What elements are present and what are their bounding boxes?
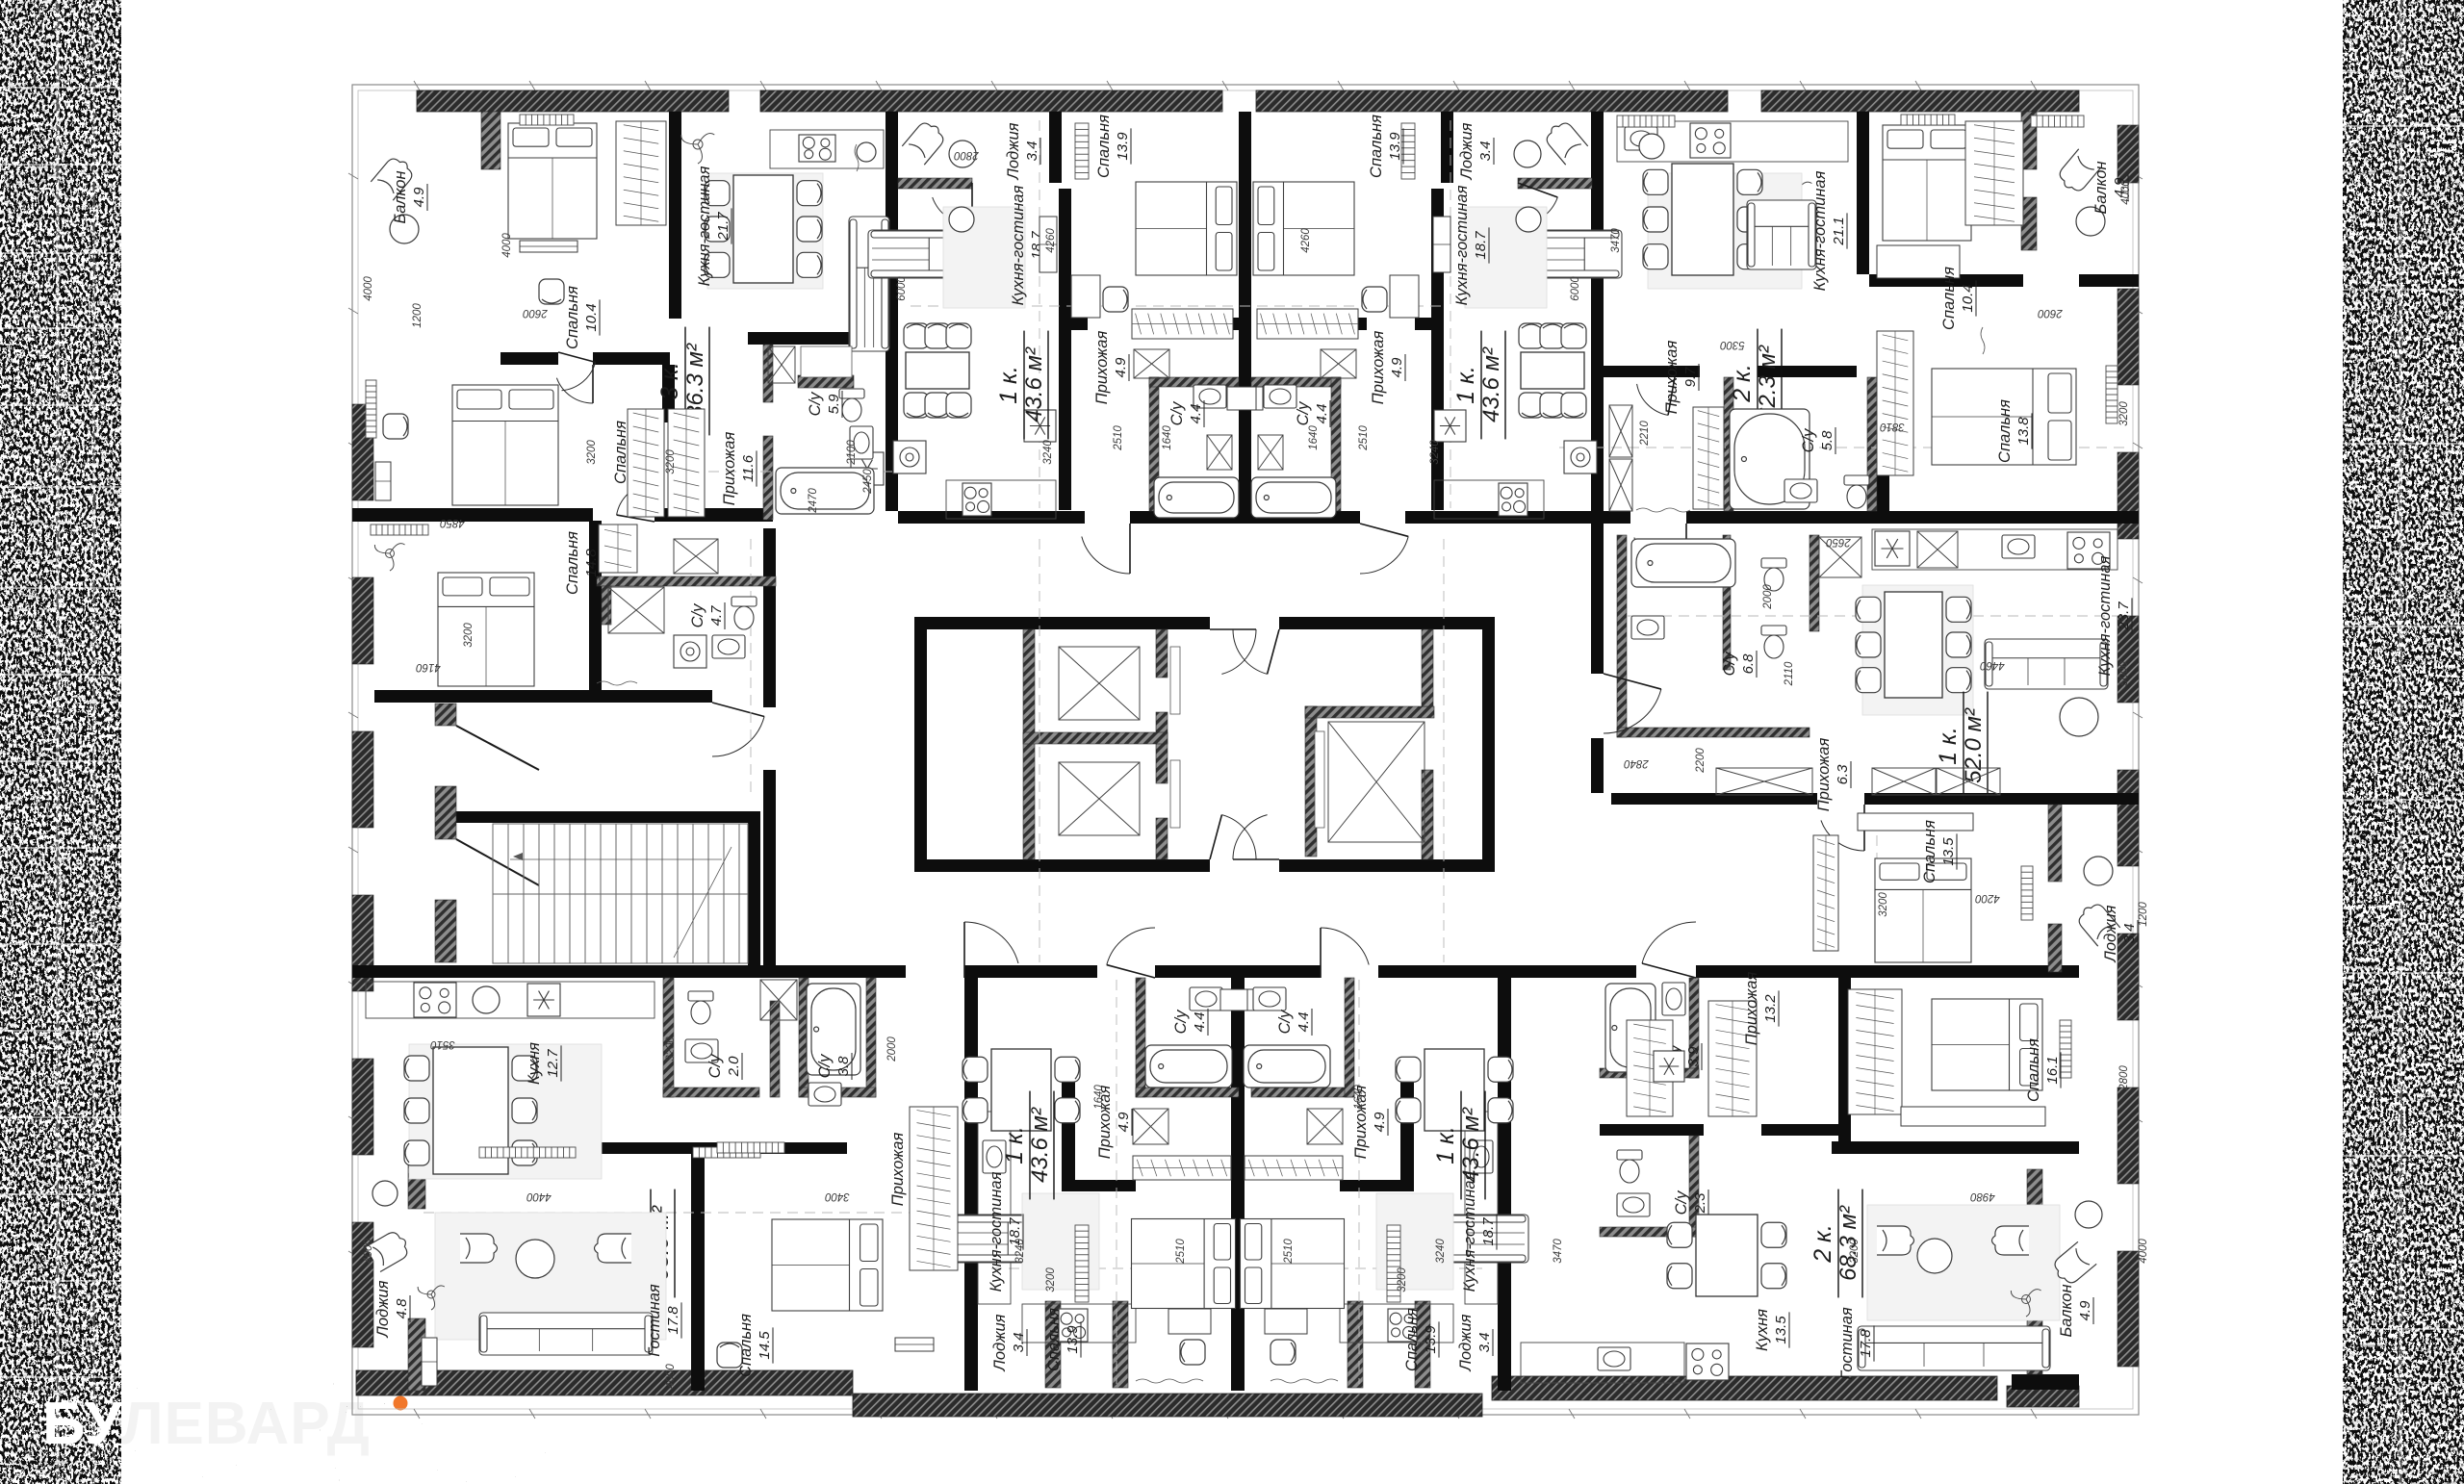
svg-text:3200: 3200 <box>1849 1239 1861 1264</box>
svg-text:Лоджия: Лоджия <box>2102 905 2119 962</box>
svg-text:21.7: 21.7 <box>715 212 731 242</box>
svg-text:4000: 4000 <box>2138 1239 2149 1264</box>
svg-text:Прихожая: Прихожая <box>1663 341 1681 415</box>
svg-text:3200: 3200 <box>665 449 677 474</box>
svg-text:86.3 м²: 86.3 м² <box>682 343 708 419</box>
svg-text:С/у: С/у <box>1276 1009 1294 1035</box>
svg-text:21.1: 21.1 <box>1831 217 1847 245</box>
svg-text:С/у: С/у <box>1721 651 1738 677</box>
svg-text:1 к.: 1 к. <box>1452 366 1479 404</box>
svg-text:4.4: 4.4 <box>1296 1012 1312 1033</box>
svg-text:1640: 1640 <box>1162 425 1173 450</box>
svg-text:Лоджия: Лоджия <box>374 1280 392 1338</box>
svg-text:17.8: 17.8 <box>665 1306 681 1335</box>
svg-text:3470: 3470 <box>1553 1239 1564 1264</box>
svg-text:52.0 м²: 52.0 м² <box>1961 707 1987 783</box>
svg-text:Кухня: Кухня <box>526 1042 543 1085</box>
svg-text:18.7: 18.7 <box>1480 1217 1497 1246</box>
svg-text:14.8: 14.8 <box>583 549 600 577</box>
svg-text:Кухня-гостиная: Кухня-гостиная <box>1811 170 1829 291</box>
svg-text:Кухня-гостиная: Кухня-гостиная <box>1010 185 1027 305</box>
svg-text:3.8: 3.8 <box>835 1056 852 1077</box>
svg-text:С/у: С/у <box>706 1053 724 1079</box>
svg-text:4.9: 4.9 <box>411 187 427 208</box>
svg-text:Спальня: Спальня <box>1045 1308 1063 1371</box>
svg-text:3200: 3200 <box>1045 1267 1057 1292</box>
svg-text:3510: 3510 <box>430 1038 455 1050</box>
svg-text:3400: 3400 <box>825 1190 850 1202</box>
svg-text:Спальня: Спальня <box>1403 1308 1421 1371</box>
svg-text:Спальня: Спальня <box>1095 115 1113 178</box>
svg-text:2650: 2650 <box>1826 536 1852 548</box>
svg-text:6000: 6000 <box>896 276 908 301</box>
svg-text:2 к.: 2 к. <box>1729 364 1756 403</box>
svg-text:Кухня-гостиная: Кухня-гостиная <box>1453 185 1471 305</box>
svg-text:3240: 3240 <box>1042 440 1054 465</box>
svg-text:Спальня: Спальня <box>737 1314 755 1377</box>
svg-text:3.9: 3.9 <box>1685 1046 1702 1067</box>
svg-text:Кухня-гостиная: Кухня-гостиная <box>1461 1171 1478 1292</box>
svg-text:16.1: 16.1 <box>2044 1056 2061 1084</box>
svg-text:2800: 2800 <box>954 149 980 161</box>
svg-text:3470: 3470 <box>1610 228 1622 253</box>
svg-text:9.7: 9.7 <box>1682 367 1699 388</box>
svg-text:13.8: 13.8 <box>2015 417 2032 446</box>
svg-text:Спальня: Спальня <box>564 531 581 595</box>
svg-text:Балкон: Балкон <box>2092 161 2110 214</box>
svg-text:5300: 5300 <box>1720 339 1745 350</box>
svg-text:6000: 6000 <box>1570 276 1581 301</box>
svg-text:14.5: 14.5 <box>757 1331 773 1360</box>
svg-text:2200: 2200 <box>1695 748 1707 774</box>
svg-text:2600: 2600 <box>523 307 549 319</box>
svg-text:10.4: 10.4 <box>1960 284 1976 312</box>
svg-text:2510: 2510 <box>1283 1239 1295 1265</box>
svg-text:1200: 1200 <box>412 303 423 328</box>
svg-text:Гостиная: Гостиная <box>646 1284 663 1357</box>
svg-text:4980: 4980 <box>1970 1190 1995 1202</box>
svg-text:Спальня: Спальня <box>1921 820 1938 883</box>
svg-text:Кухня: Кухня <box>1754 1309 1771 1351</box>
svg-text:4.9: 4.9 <box>1389 357 1405 378</box>
svg-text:4000: 4000 <box>363 1239 374 1264</box>
svg-text:3200: 3200 <box>665 1036 677 1062</box>
svg-text:4.4: 4.4 <box>1192 1012 1208 1033</box>
svg-text:С/у: С/у <box>1295 400 1312 426</box>
svg-text:5000: 5000 <box>2118 661 2130 686</box>
svg-text:2510: 2510 <box>1358 425 1370 451</box>
svg-text:4.8: 4.8 <box>394 1298 410 1319</box>
svg-text:6.8: 6.8 <box>1740 653 1757 675</box>
svg-text:13.5: 13.5 <box>1940 837 1957 866</box>
svg-text:13.5: 13.5 <box>1773 1316 1789 1344</box>
svg-text:4.4: 4.4 <box>1188 404 1204 424</box>
svg-text:43.6 м²: 43.6 м² <box>1027 1107 1053 1183</box>
svg-text:13.9: 13.9 <box>1423 1325 1439 1354</box>
svg-text:5.8: 5.8 <box>1819 430 1835 451</box>
svg-text:Лоджия: Лоджия <box>991 1314 1009 1371</box>
svg-text:10.4: 10.4 <box>583 303 600 331</box>
svg-text:Кухня-гостиная: Кухня-гостиная <box>988 1171 1005 1292</box>
svg-text:Лоджия: Лоджия <box>1005 122 1022 180</box>
svg-text:2.3: 2.3 <box>1692 1192 1708 1215</box>
svg-text:2510: 2510 <box>1175 1239 1187 1265</box>
svg-text:С/у: С/у <box>1172 1009 1190 1035</box>
svg-text:3200: 3200 <box>586 440 598 465</box>
svg-text:1 к.: 1 к. <box>1432 1126 1459 1164</box>
svg-text:4000: 4000 <box>363 276 374 301</box>
svg-text:4460: 4460 <box>1980 659 2005 671</box>
svg-text:Прихожая: Прихожая <box>721 432 738 506</box>
svg-text:4200: 4200 <box>1975 892 2000 904</box>
svg-text:Прихожая: Прихожая <box>1743 972 1760 1046</box>
svg-text:4.7: 4.7 <box>708 605 725 627</box>
svg-text:3.4: 3.4 <box>1476 1333 1493 1353</box>
svg-text:3200: 3200 <box>463 623 475 648</box>
svg-text:13.9: 13.9 <box>1065 1325 1081 1354</box>
svg-text:3200: 3200 <box>1878 892 1889 917</box>
svg-text:2600: 2600 <box>2038 307 2064 319</box>
svg-text:4.9: 4.9 <box>2077 1300 2093 1321</box>
svg-text:4000: 4000 <box>2120 180 2132 205</box>
svg-text:С/у: С/у <box>807 391 824 417</box>
svg-text:2510: 2510 <box>1113 425 1124 451</box>
svg-text:13.9: 13.9 <box>1387 132 1403 161</box>
svg-text:4000: 4000 <box>501 233 513 258</box>
svg-text:2.0: 2.0 <box>726 1056 742 1078</box>
svg-text:2800: 2800 <box>2118 1065 2130 1091</box>
svg-text:2110: 2110 <box>1784 661 1795 686</box>
svg-text:Балкон: Балкон <box>392 170 409 223</box>
svg-text:3.4: 3.4 <box>1011 1333 1027 1353</box>
svg-text:13.9: 13.9 <box>1115 132 1131 161</box>
svg-text:5.9: 5.9 <box>826 394 842 415</box>
svg-text:Кухня-гостиная: Кухня-гостиная <box>696 166 713 286</box>
svg-text:43.6 м²: 43.6 м² <box>1478 346 1504 422</box>
svg-text:Кухня-гостиная: Кухня-гостиная <box>2096 555 2114 676</box>
svg-text:2000: 2000 <box>886 1036 898 1062</box>
svg-text:Спальня: Спальня <box>1940 267 1958 330</box>
svg-text:13.2: 13.2 <box>1762 994 1779 1023</box>
svg-text:3240: 3240 <box>1435 1239 1447 1264</box>
svg-text:2450: 2450 <box>862 469 874 495</box>
svg-text:6.3: 6.3 <box>1835 764 1851 785</box>
svg-text:17.8: 17.8 <box>1858 1329 1874 1358</box>
svg-text:4.9: 4.9 <box>1116 1112 1132 1133</box>
svg-text:11.6: 11.6 <box>740 454 757 482</box>
svg-text:1640: 1640 <box>1308 425 1320 450</box>
svg-text:Гостиная: Гостиная <box>1838 1307 1856 1380</box>
svg-text:4.9: 4.9 <box>1113 357 1129 378</box>
svg-text:18.7: 18.7 <box>1473 231 1489 260</box>
svg-text:3.4: 3.4 <box>1024 141 1040 162</box>
svg-text:3810: 3810 <box>1880 421 1905 432</box>
svg-text:2100: 2100 <box>846 440 858 466</box>
svg-text:Прихожая: Прихожая <box>889 1133 907 1207</box>
svg-text:1 к.: 1 к. <box>1935 727 1962 765</box>
svg-text:БУ: БУ <box>42 1391 123 1457</box>
svg-text:2470: 2470 <box>808 488 819 514</box>
svg-text:С/у: С/у <box>689 602 706 628</box>
svg-text:23.7: 23.7 <box>2116 601 2132 631</box>
svg-text:4160: 4160 <box>416 661 441 673</box>
svg-text:Спальня: Спальня <box>2025 1038 2042 1102</box>
svg-text:4.4: 4.4 <box>1314 404 1330 424</box>
svg-text:3 к.: 3 к. <box>656 362 683 400</box>
svg-text:43.6 м²: 43.6 м² <box>1458 1107 1484 1183</box>
svg-text:Спальня: Спальня <box>1996 399 2014 463</box>
svg-text:1640: 1640 <box>1353 1085 1365 1110</box>
svg-text:3200: 3200 <box>2118 401 2130 426</box>
svg-text:3200: 3200 <box>1397 1267 1408 1292</box>
svg-text:3.4: 3.4 <box>2121 924 2138 944</box>
svg-text:4.9: 4.9 <box>1372 1112 1388 1133</box>
svg-text:Прихожая: Прихожая <box>1093 331 1111 405</box>
svg-text:Балкон: Балкон <box>2058 1284 2075 1337</box>
svg-text:1640: 1640 <box>1093 1085 1105 1110</box>
svg-text:2210: 2210 <box>1639 421 1651 447</box>
svg-text:4260: 4260 <box>1045 228 1057 253</box>
svg-text:Лоджия: Лоджия <box>1457 1314 1475 1371</box>
svg-text:Спальня: Спальня <box>564 286 581 349</box>
svg-text:3.4: 3.4 <box>1477 141 1494 162</box>
svg-text:4000: 4000 <box>665 1364 677 1389</box>
svg-text:2 к.: 2 к. <box>1809 1224 1836 1264</box>
svg-text:Лоджия: Лоджия <box>1458 122 1476 180</box>
svg-text:1 к.: 1 к. <box>1001 1126 1028 1164</box>
svg-text:Спальня: Спальня <box>612 421 629 484</box>
svg-text:Прихожая: Прихожая <box>1370 331 1387 405</box>
svg-text:Прихожая: Прихожая <box>1815 738 1833 812</box>
svg-text:3240: 3240 <box>1014 1239 1026 1264</box>
svg-text:3240: 3240 <box>1429 440 1441 465</box>
svg-text:43.6 м²: 43.6 м² <box>1021 346 1047 422</box>
svg-text:12.7: 12.7 <box>545 1049 561 1078</box>
svg-text:С/у: С/у <box>816 1053 834 1079</box>
svg-text:ЛЕВАРД: ЛЕВАРД <box>121 1391 371 1457</box>
svg-text:С/у: С/у <box>1800 427 1817 453</box>
svg-text:2000: 2000 <box>1762 584 1774 610</box>
svg-text:С/у: С/у <box>1673 1190 1690 1215</box>
svg-text:С/у: С/у <box>1168 400 1186 426</box>
svg-text:4400: 4400 <box>526 1190 552 1202</box>
svg-text:2840: 2840 <box>1624 757 1650 769</box>
svg-text:1 к.: 1 к. <box>995 366 1022 404</box>
svg-text:Спальня: Спальня <box>1368 115 1385 178</box>
svg-text:4260: 4260 <box>1300 228 1312 253</box>
svg-text:1200: 1200 <box>2138 902 2149 927</box>
svg-text:4850: 4850 <box>440 517 465 528</box>
